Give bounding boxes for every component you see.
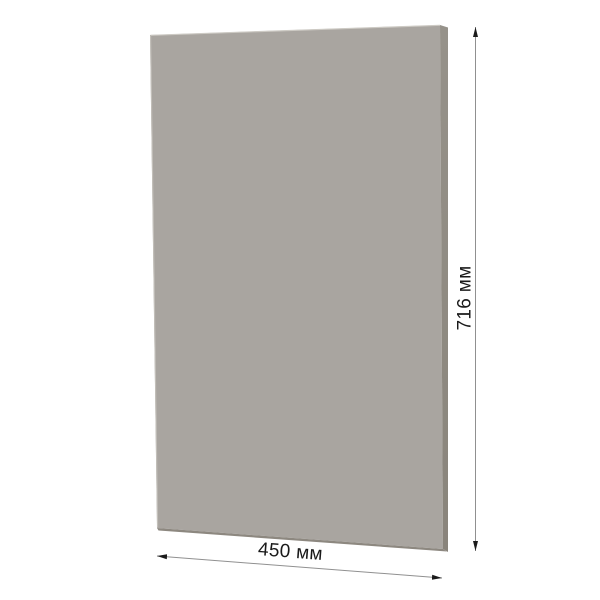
diagram-svg: 716 мм 450 мм xyxy=(0,0,600,600)
panel-front-face xyxy=(150,25,443,549)
panel-dimension-diagram: 716 мм 450 мм xyxy=(0,0,600,600)
height-dimension-label: 716 мм xyxy=(455,266,476,331)
width-dimension-label: 450 мм xyxy=(257,539,323,565)
